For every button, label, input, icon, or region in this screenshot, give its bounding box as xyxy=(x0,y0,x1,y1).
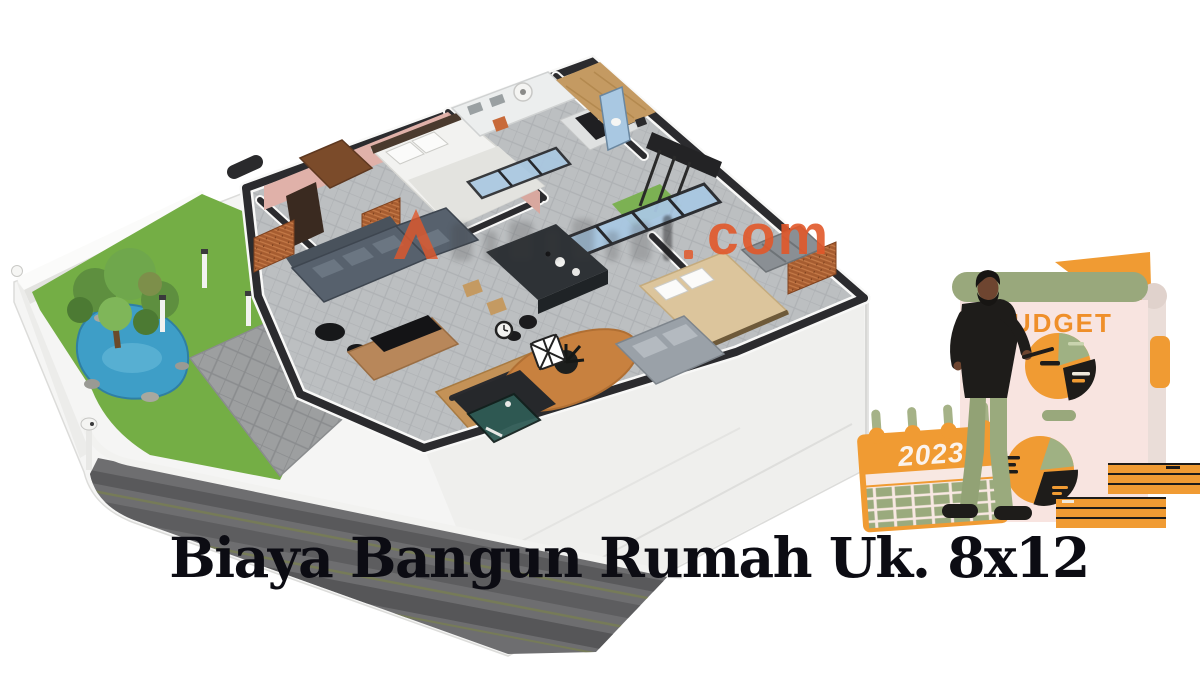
calendar-year: 2023 xyxy=(896,437,965,473)
side-tab xyxy=(1150,336,1170,388)
hero-image: BUDGET xyxy=(0,0,1200,675)
pointer-dash xyxy=(1040,361,1060,366)
calendar-2023: 2023 xyxy=(855,401,1009,533)
coffee-table xyxy=(315,323,345,341)
shoe-right xyxy=(994,506,1032,520)
budget-illustration: BUDGET xyxy=(855,252,1200,533)
corner-lamp xyxy=(12,266,23,277)
page-title: Biaya Bangun Rumah Uk. 8x12 xyxy=(58,525,1200,590)
shoe-left xyxy=(942,504,978,518)
divider-pill xyxy=(1042,410,1076,421)
bar-stool xyxy=(519,315,537,329)
